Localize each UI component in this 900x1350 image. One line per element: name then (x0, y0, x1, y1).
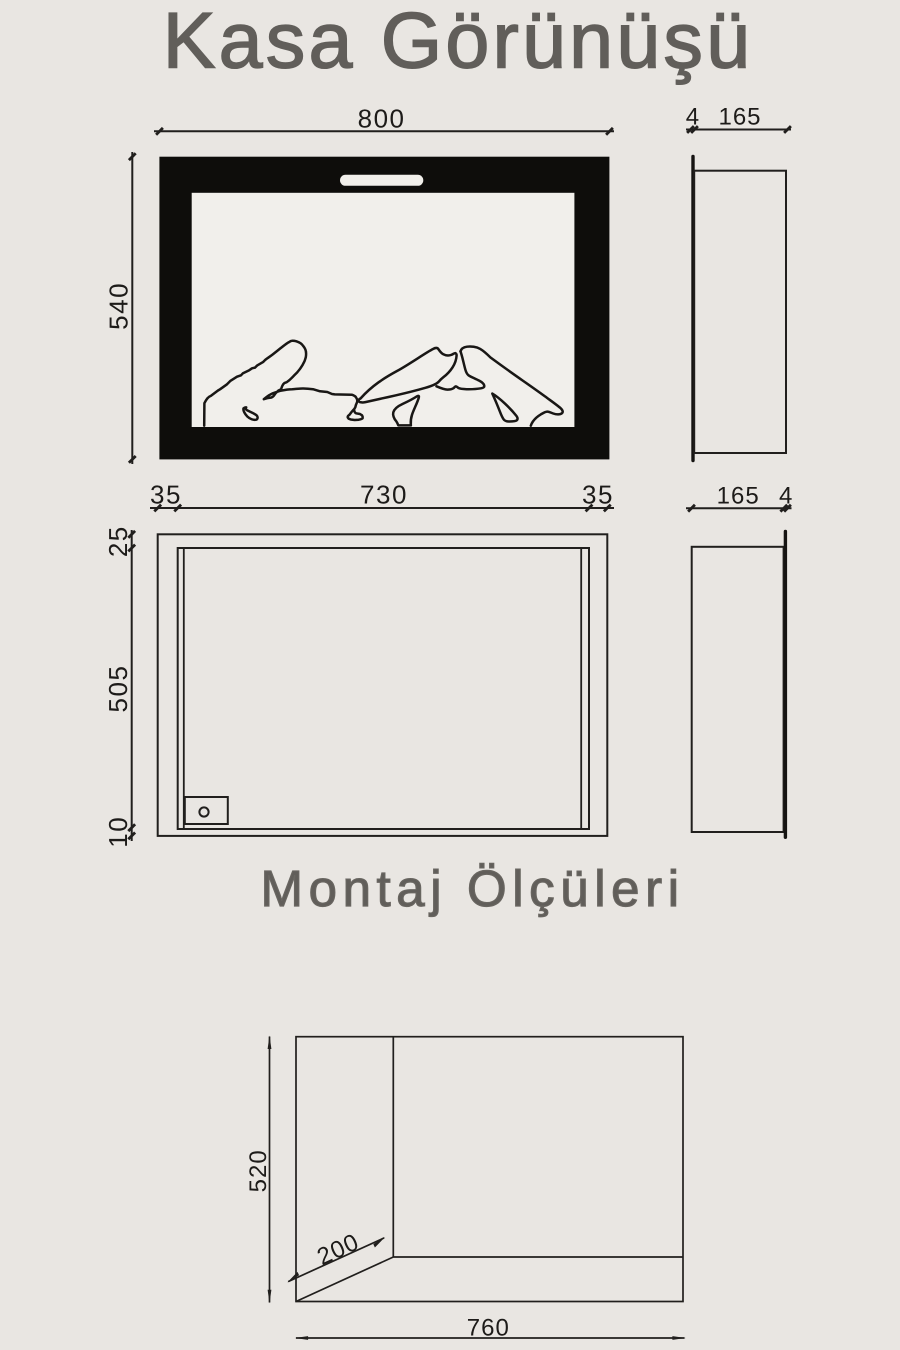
svg-text:35: 35 (582, 480, 614, 510)
svg-text:10: 10 (103, 816, 133, 848)
svg-text:505: 505 (103, 665, 133, 713)
svg-text:165: 165 (718, 104, 761, 131)
svg-text:Montaj Ölçüleri: Montaj Ölçüleri (261, 860, 685, 917)
svg-text:540: 540 (104, 282, 134, 330)
svg-text:800: 800 (358, 104, 406, 134)
svg-text:760: 760 (467, 1314, 510, 1341)
svg-text:4: 4 (779, 483, 793, 510)
svg-text:520: 520 (245, 1149, 272, 1192)
svg-text:165: 165 (717, 483, 760, 510)
svg-text:730: 730 (360, 480, 408, 510)
svg-text:4: 4 (686, 104, 700, 131)
svg-text:Kasa Görünüşü: Kasa Görünüşü (163, 0, 754, 85)
svg-text:35: 35 (150, 480, 182, 510)
svg-text:25: 25 (103, 525, 133, 557)
